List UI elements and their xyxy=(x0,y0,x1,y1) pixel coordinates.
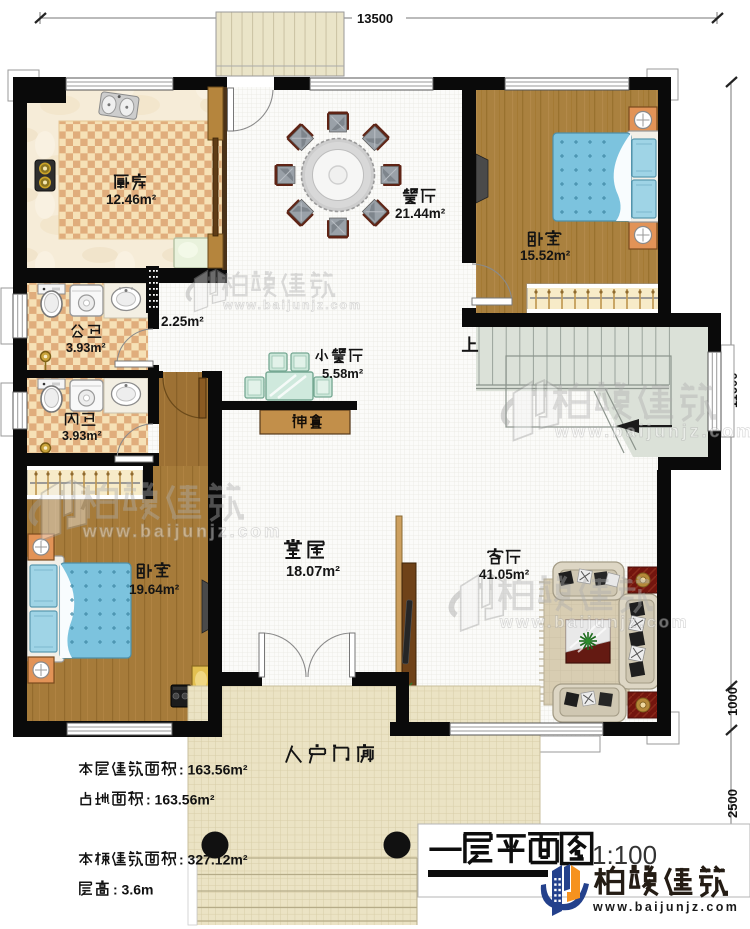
svg-text:2.25m²: 2.25m² xyxy=(161,314,204,329)
svg-text:www.baijunjz.com: www.baijunjz.com xyxy=(592,900,739,914)
svg-text:2500: 2500 xyxy=(725,789,740,818)
svg-text:: 163.56m²: : 163.56m² xyxy=(179,762,248,778)
svg-text:13500: 13500 xyxy=(357,11,393,26)
svg-text:1000: 1000 xyxy=(725,687,740,716)
svg-text:5.58m²: 5.58m² xyxy=(322,366,364,381)
svg-text:41.05m²: 41.05m² xyxy=(479,567,530,582)
svg-text:3.93m²: 3.93m² xyxy=(66,341,106,355)
svg-text:: 327.12m²: : 327.12m² xyxy=(179,852,248,868)
svg-text:: 163.56m²: : 163.56m² xyxy=(146,792,215,808)
svg-text:12.46m²: 12.46m² xyxy=(106,192,157,207)
svg-text:21.44m²: 21.44m² xyxy=(395,206,446,221)
svg-text:www.baijunjz.com: www.baijunjz.com xyxy=(82,521,283,541)
svg-text:: 3.6m: : 3.6m xyxy=(113,882,153,898)
svg-text:www.baijunjz.com: www.baijunjz.com xyxy=(554,421,750,441)
svg-text:3.93m²: 3.93m² xyxy=(62,429,102,443)
svg-text:www.baijunjz.com: www.baijunjz.com xyxy=(222,298,362,312)
svg-text:15.52m²: 15.52m² xyxy=(520,248,571,263)
svg-text:18.07m²: 18.07m² xyxy=(286,564,340,580)
svg-text:19.64m²: 19.64m² xyxy=(129,582,180,597)
svg-text:www.baijunjz.com: www.baijunjz.com xyxy=(499,613,690,632)
